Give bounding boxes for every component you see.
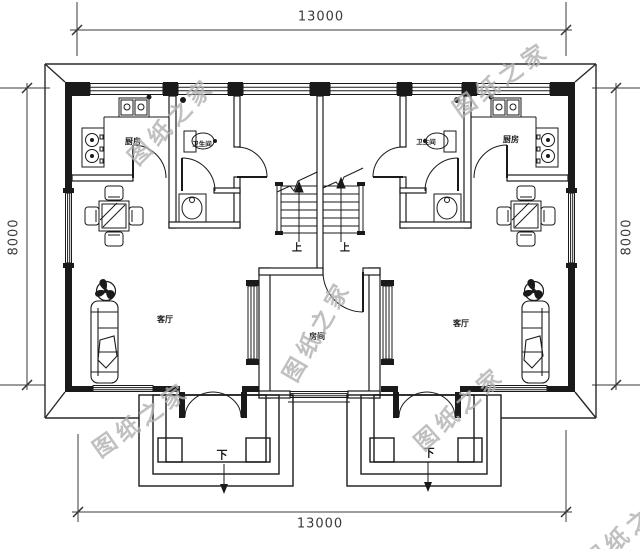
stair-up-label-left: 上: [292, 244, 302, 254]
dining-table-icon: [85, 186, 143, 246]
kitchen-label-right: 厨房: [503, 136, 519, 144]
dining-table-icon: [497, 186, 555, 246]
washbasin-icon: [434, 194, 461, 222]
porch-down-arrows: [220, 462, 432, 494]
dimension-right-label: 8000: [621, 218, 634, 255]
stair-up-label-right: 上: [340, 244, 350, 254]
washbasin-icon: [179, 194, 206, 222]
sofa-icon: [91, 301, 118, 383]
dimension-left-label: 8000: [8, 218, 21, 255]
porch-down-label-left: 下: [217, 450, 228, 461]
floor-plan: 13000 13000 8000 8000 厨房 厨房 卫生间 卫生间 客厅 客…: [0, 0, 640, 549]
sink-icon: [119, 95, 151, 117]
bathroom-label-right: 卫生间: [416, 139, 436, 146]
dimension-top-label: 13000: [298, 11, 344, 24]
stove-icon: [536, 128, 558, 167]
ceiling-fan-icon: [95, 279, 116, 301]
stove-icon: [82, 128, 104, 167]
dimension-bottom-label: 13000: [297, 518, 343, 531]
porch-column-icon: [458, 438, 482, 462]
living-room-label-right: 客厅: [453, 320, 469, 328]
bathroom-label-left: 卫生间: [192, 141, 212, 148]
floor-plan-drawing: [0, 0, 640, 549]
porch-column-icon: [158, 438, 182, 462]
sofa-icon: [522, 301, 549, 383]
ceiling-fan-icon: [523, 279, 544, 301]
living-room-label-left: 客厅: [157, 316, 173, 324]
